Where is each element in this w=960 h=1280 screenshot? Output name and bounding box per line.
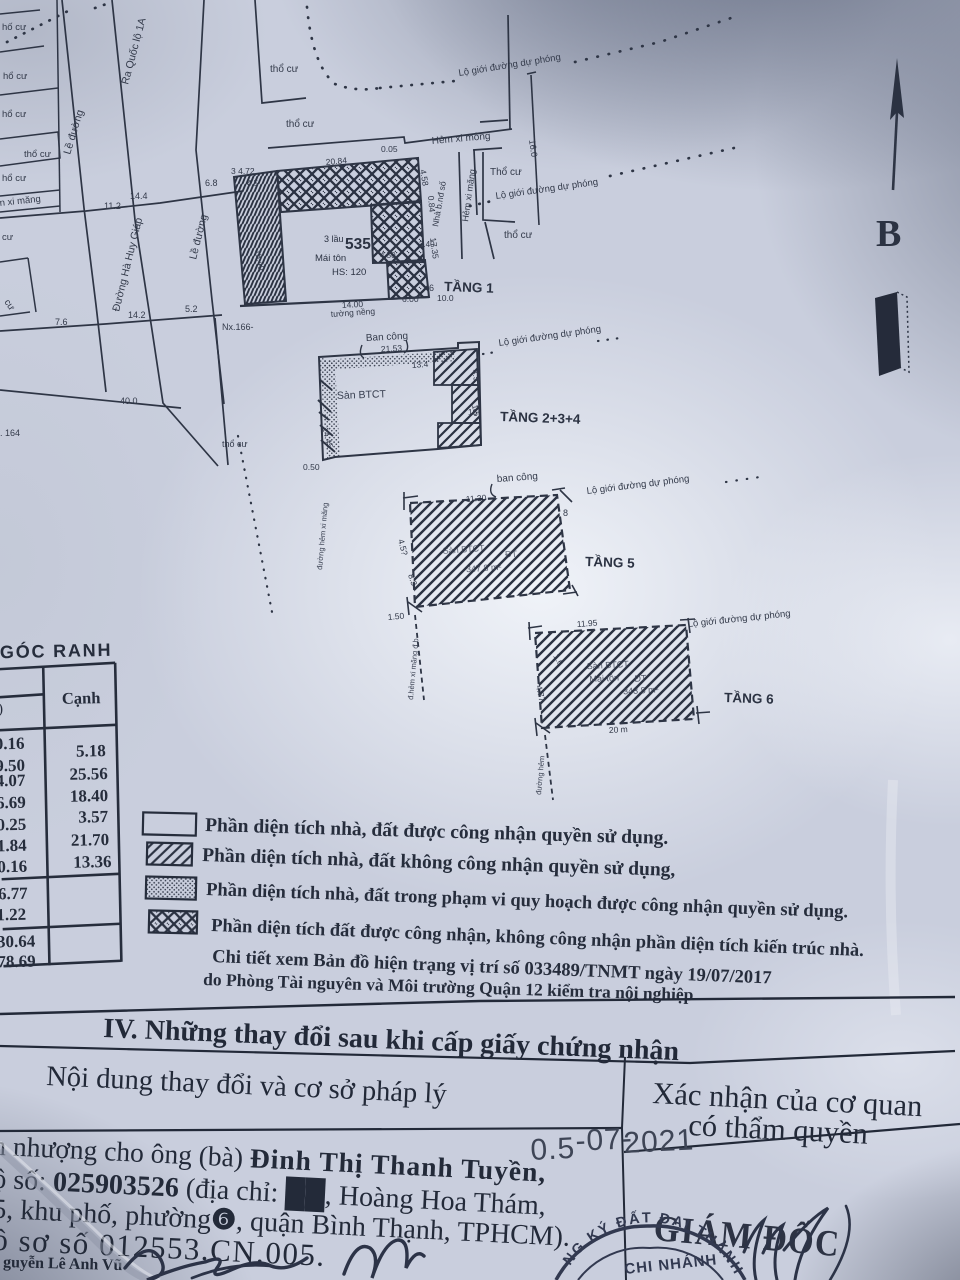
svg-text:thổ cư: thổ cư [222,439,248,449]
svg-text:Mái tôn: Mái tôn [589,673,619,685]
svg-text:11.95: 11.95 [576,618,598,629]
svg-text:Phần diện tích nhà, đất trong: Phần diện tích nhà, đất trong phạm vi qu… [206,880,849,922]
svg-text:Phần diện tích nhà, đất được c: Phần diện tích nhà, đất được công nhận q… [205,815,669,849]
svg-text:TẦNG 5: TẦNG 5 [585,554,635,571]
svg-text:Phần diện tích nhà, đất không: Phần diện tích nhà, đất không công nhận … [202,845,676,881]
svg-text:14.4: 14.4 [130,191,148,201]
svg-text:40.0: 40.0 [120,396,138,406]
svg-text:3 4.72: 3 4.72 [231,166,255,176]
svg-text:Cạnh: Cạnh [62,688,101,708]
svg-text:thổ cư: thổ cư [286,118,315,130]
svg-text:78.69: 78.69 [0,952,36,972]
svg-text:11.2: 11.2 [104,201,121,211]
svg-text:3.57: 3.57 [78,807,109,827]
svg-text:6.00: 6.00 [402,294,419,304]
svg-text:13.4: 13.4 [411,359,428,370]
svg-text:0.16: 0.16 [0,734,25,754]
svg-text:3 lầu: 3 lầu [324,234,344,244]
svg-text:tường nềng: tường nềng [330,306,375,319]
svg-text:Lề đường: Lề đường [61,108,86,156]
svg-text:4.5?: 4.5? [396,538,410,557]
svg-text:0.50: 0.50 [303,462,320,472]
svg-text:HS: 120: HS: 120 [332,267,366,278]
svg-text:6.77: 6.77 [0,884,28,904]
svg-text:1.50: 1.50 [387,611,405,622]
svg-text:0.05: 0.05 [381,144,398,154]
svg-text:0.84: 0.84 [426,195,437,213]
svg-text:thổ cư: thổ cư [270,63,299,75]
svg-text:cư: cư [2,232,14,243]
svg-text:10.0: 10.0 [437,293,454,303]
svg-text:hổ cư: hổ cư [2,109,27,120]
svg-text:Nx.166-: Nx.166- [222,322,254,332]
svg-text:Ban công: Ban công [366,331,409,344]
svg-text:3.40: 3.40 [419,240,435,249]
svg-text:5.2: 5.2 [185,304,198,314]
svg-text:CHI NHÁNH: CHI NHÁNH [624,1251,718,1278]
svg-text:4.77: 4.77 [534,684,547,703]
svg-text:cư: cư [2,297,18,313]
svg-text:16.0: 16.0 [527,139,539,158]
svg-text:25.56: 25.56 [69,764,108,784]
svg-text:. 164: . 164 [0,428,20,438]
svg-text:TẦNG 6: TẦNG 6 [724,690,774,707]
svg-text:Lộ giới đường dự phóng: Lộ giới đường dự phóng [495,177,599,202]
svg-text:Sàn BTCT: Sàn BTCT [337,388,387,402]
svg-text:TẦNG 2+3+4: TẦNG 2+3+4 [500,409,581,427]
svg-text:30.64: 30.64 [0,932,36,952]
svg-text:Lộ giới đường dự phóng: Lộ giới đường dự phóng [586,473,690,497]
svg-text:16: 16 [468,408,477,417]
svg-text:GÓC RANH: GÓC RANH [0,639,112,662]
svg-text:21.70: 21.70 [71,830,110,850]
svg-text:guyễn Lê Anh Vũ: guyễn Lê Anh Vũ [3,1254,123,1274]
svg-text:4.5: 4.5 [247,179,259,188]
svg-text:Nội dung thay đổi và cơ sở phá: Nội dung thay đổi và cơ sở pháp lý [46,1061,448,1110]
svg-text:Hẻm xi mỏng: Hẻm xi mỏng [431,130,491,147]
svg-text:TẦNG 1: TẦNG 1 [444,279,494,296]
svg-text:ĐT: ĐT [505,549,518,560]
svg-text:Lộ giới đường dự phóng: Lộ giới đường dự phóng [687,608,791,630]
svg-text:Thổ cư: Thổ cư [490,166,522,178]
svg-text:20 m: 20 m [609,724,628,735]
svg-text:Đường Hà Huy Giáp: Đường Hà Huy Giáp [110,216,145,312]
svg-text:thổ cư: thổ cư [24,149,52,160]
svg-text:8: 8 [563,508,568,518]
svg-text:1.22: 1.22 [0,905,26,925]
svg-text:535: 535 [345,236,371,253]
svg-text:6: 6 [429,283,434,293]
svg-text:hố cư: hố cư [2,22,27,33]
svg-text:B: B [876,213,901,255]
svg-text:5.18: 5.18 [76,741,106,761]
svg-text:4.50: 4.50 [380,251,396,260]
svg-text:13.36: 13.36 [73,852,112,872]
svg-text:6.8: 6.8 [205,178,218,188]
svg-text:đường hẻm xi măng: đường hẻm xi măng [315,502,330,570]
svg-text:Hẻm xi măng: Hẻm xi măng [460,168,477,222]
svg-text:0.16: 0.16 [0,857,27,877]
svg-text:7.6: 7.6 [55,317,68,327]
svg-text:đường hẻm: đường hẻm [534,755,546,795]
svg-text:): ) [0,701,3,717]
svg-text:4.07: 4.07 [0,771,26,791]
svg-text:IV. Những thay đổi sau khi cấp: IV. Những thay đổi sau khi cấp giấy chứn… [103,1013,680,1067]
svg-text:ĐT: ĐT [634,673,647,684]
svg-text:343.8 m²: 343.8 m² [623,684,659,696]
svg-text:hổ cư: hổ cư [3,71,28,82]
svg-text:ban công: ban công [496,471,538,485]
svg-text:14.2: 14.2 [128,310,146,320]
svg-text:0.25: 0.25 [0,815,26,835]
svg-text:6.69: 6.69 [0,793,26,813]
svg-text:hổ cư: hổ cư [2,173,27,184]
svg-text:thổ cư: thổ cư [504,229,533,241]
svg-text:0.5: 0.5 [530,1132,576,1167]
svg-text:2021: 2021 [623,1123,695,1160]
svg-text:20.84: 20.84 [325,155,347,167]
svg-text:Ra Quốc lộ 1A: Ra Quốc lộ 1A [119,17,148,86]
svg-text:1.84: 1.84 [0,836,27,856]
svg-text:đ.hẻm xi măng đ.b: đ.hẻm xi măng đ.b [406,638,420,700]
svg-text:4.5: 4.5 [470,369,482,383]
svg-text:18.40: 18.40 [70,786,109,806]
svg-text:Mái tôn: Mái tôn [315,253,346,264]
svg-text:Lộ giới đường dự phóng: Lộ giới đường dự phóng [498,324,602,349]
